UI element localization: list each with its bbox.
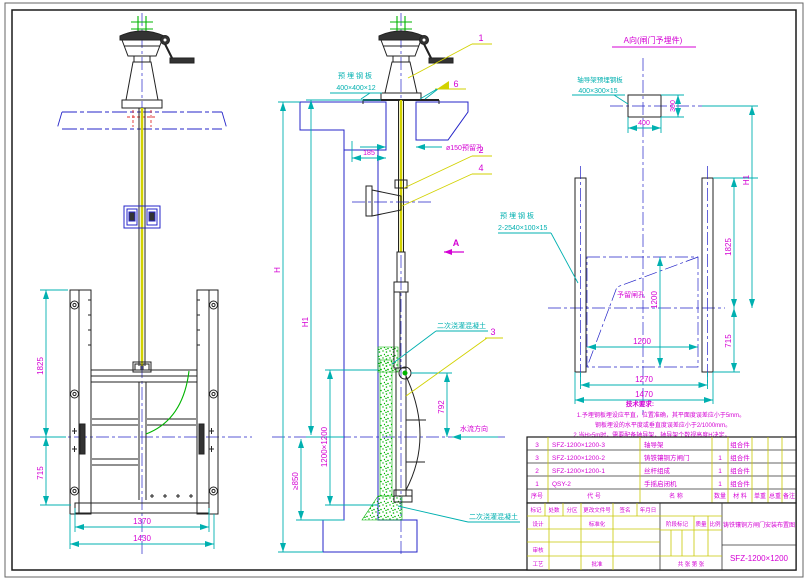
svg-text:组合件: 组合件 bbox=[730, 466, 750, 475]
tb-check: 审核 bbox=[532, 546, 544, 554]
dim-1470: 1470 bbox=[635, 390, 653, 399]
dim-1825-front: 1825 bbox=[36, 357, 45, 375]
svg-text:铸铁镶铜方闸门: 铸铁镶铜方闸门 bbox=[644, 453, 690, 462]
parts-header-code: 代 号 bbox=[587, 492, 601, 500]
dim-300: 300 bbox=[670, 100, 677, 112]
parts-header-mat: 材 料 bbox=[733, 492, 747, 500]
dim-1430: 1430 bbox=[133, 534, 151, 543]
svg-text:3: 3 bbox=[535, 442, 539, 449]
tb-mass: 质量 bbox=[695, 520, 707, 528]
svg-text:1: 1 bbox=[718, 455, 722, 462]
second-concrete-top-label: 二次浇灌混凝土 bbox=[437, 321, 486, 330]
tb-rev-mark: 标记 bbox=[530, 506, 542, 514]
hole-label: ø150预留孔 bbox=[446, 143, 483, 152]
dim-1200x1200: 1200×1200 bbox=[320, 426, 329, 467]
svg-text:1: 1 bbox=[718, 481, 722, 488]
dim-H1: H1 bbox=[301, 316, 310, 327]
note-line-2: 钢板埋设的水平度或垂直度误差应小于2/1000mm。 bbox=[595, 421, 731, 429]
parts-header-name: 名 称 bbox=[669, 492, 683, 500]
tb-rev-count: 处数 bbox=[548, 506, 560, 514]
second-concrete-bottom-label: 二次浇灌混凝土 bbox=[469, 512, 518, 521]
parts-header-no: 序号 bbox=[531, 492, 543, 500]
tb-craft: 工艺 bbox=[532, 561, 544, 568]
dim-1200-h: 1200 bbox=[633, 337, 651, 346]
note-line-1: 1.予埋钢板埋设应平直，位置准确，其平面度误差应小于5mm。 bbox=[577, 411, 745, 419]
balloon-6: 6 bbox=[453, 79, 458, 89]
embed-plate2-label-2: 2-2540×100×15 bbox=[498, 225, 548, 232]
dim-1270: 1270 bbox=[635, 375, 653, 384]
dim-185: 185 bbox=[363, 150, 375, 157]
dim-715-embed: 715 bbox=[724, 334, 733, 348]
svg-text:1: 1 bbox=[535, 481, 539, 488]
tb-stage-mark: 阶段标记 bbox=[666, 520, 689, 528]
dim-715-front: 715 bbox=[36, 466, 45, 480]
flow-direction-label: 水流方向 bbox=[460, 424, 488, 433]
dim-H: H bbox=[273, 267, 282, 273]
embed-view-title: A向(闸门予埋件) bbox=[624, 35, 683, 45]
guide-plate-label-2: 400×300×15 bbox=[578, 88, 617, 95]
drawing-code: SFZ-1200×1200 bbox=[730, 554, 789, 563]
svg-text:组合件: 组合件 bbox=[730, 479, 750, 488]
svg-text:SFZ-1200×1200-1: SFZ-1200×1200-1 bbox=[552, 468, 605, 475]
tb-rev-date: 年月日 bbox=[640, 506, 657, 514]
balloon-4: 4 bbox=[478, 163, 483, 173]
seal-dot bbox=[403, 371, 408, 376]
dim-1200-v: 1200 bbox=[650, 291, 659, 309]
tb-sheet: 共 张 第 张 bbox=[678, 560, 705, 568]
svg-text:2: 2 bbox=[535, 468, 539, 475]
dim-H1-embed: H1 bbox=[742, 174, 751, 185]
svg-text:1: 1 bbox=[718, 468, 722, 475]
embed-plate-label-2: 400×400×12 bbox=[336, 85, 375, 92]
dim-792: 792 bbox=[437, 400, 446, 414]
drawing-canvas: 1825 715 1370 1430 bbox=[0, 0, 808, 580]
dim-ge850: ≥850 bbox=[291, 472, 300, 490]
svg-text:组合件: 组合件 bbox=[730, 440, 750, 449]
tb-scale: 比例 bbox=[709, 520, 721, 528]
dim-400: 400 bbox=[638, 120, 650, 127]
tb-rev-sign: 签名 bbox=[619, 506, 630, 514]
dim-1370: 1370 bbox=[133, 517, 151, 526]
svg-text:3: 3 bbox=[535, 455, 539, 462]
svg-text:组合件: 组合件 bbox=[730, 453, 750, 462]
parts-header-qty: 数量 bbox=[714, 492, 726, 500]
parts-header-unitw: 单重 bbox=[754, 492, 766, 500]
embed-plate-label-1: 预埋钢板 bbox=[338, 71, 374, 80]
reserved-hole-label: 予留闸孔 bbox=[617, 290, 645, 299]
tb-design: 设计 bbox=[532, 520, 544, 528]
guide-plate-label-1: 轴导架预埋钢板 bbox=[577, 75, 623, 84]
svg-text:SFZ-1200×1200-2: SFZ-1200×1200-2 bbox=[552, 455, 605, 462]
dim-1825-embed: 1825 bbox=[724, 238, 733, 256]
tb-rev-zone: 分区 bbox=[566, 506, 578, 514]
embed-plate2-label-1: 预埋钢板 bbox=[500, 211, 536, 220]
drawing-title: 铸铁镶铜方闸门安装布置图 bbox=[723, 521, 795, 529]
svg-text:轴导架: 轴导架 bbox=[644, 440, 664, 449]
balloon-3: 3 bbox=[490, 327, 495, 337]
tb-standardize: 标准化 bbox=[589, 520, 606, 528]
svg-text:丝杆组成: 丝杆组成 bbox=[644, 466, 671, 475]
title-block: 标记 处数 分区 更改文件号 签名 年月日 设计 标准化 审核 工艺 批准 阶段… bbox=[527, 503, 796, 570]
notes-title: 技术要求: bbox=[626, 399, 654, 408]
svg-text:A: A bbox=[453, 238, 460, 248]
tb-rev-docno: 更改文件号 bbox=[583, 506, 611, 514]
parts-header-totw: 总重 bbox=[769, 492, 781, 500]
balloon-1: 1 bbox=[478, 33, 483, 43]
parts-table: 序号 代 号 名 称 数量 材 料 单重 总重 备注 3 SFZ-1200×12… bbox=[527, 437, 796, 503]
svg-text:手摇启闭机: 手摇启闭机 bbox=[644, 479, 677, 488]
svg-text:SFZ-1200×1200-3: SFZ-1200×1200-3 bbox=[552, 442, 605, 449]
cad-drawing-sheet: 1825 715 1370 1430 bbox=[0, 0, 808, 580]
svg-text:QSY-2: QSY-2 bbox=[552, 481, 571, 488]
tb-approve: 批准 bbox=[591, 560, 603, 568]
parts-header-note: 备注 bbox=[783, 492, 795, 500]
balloon-2: 2 bbox=[478, 145, 483, 155]
